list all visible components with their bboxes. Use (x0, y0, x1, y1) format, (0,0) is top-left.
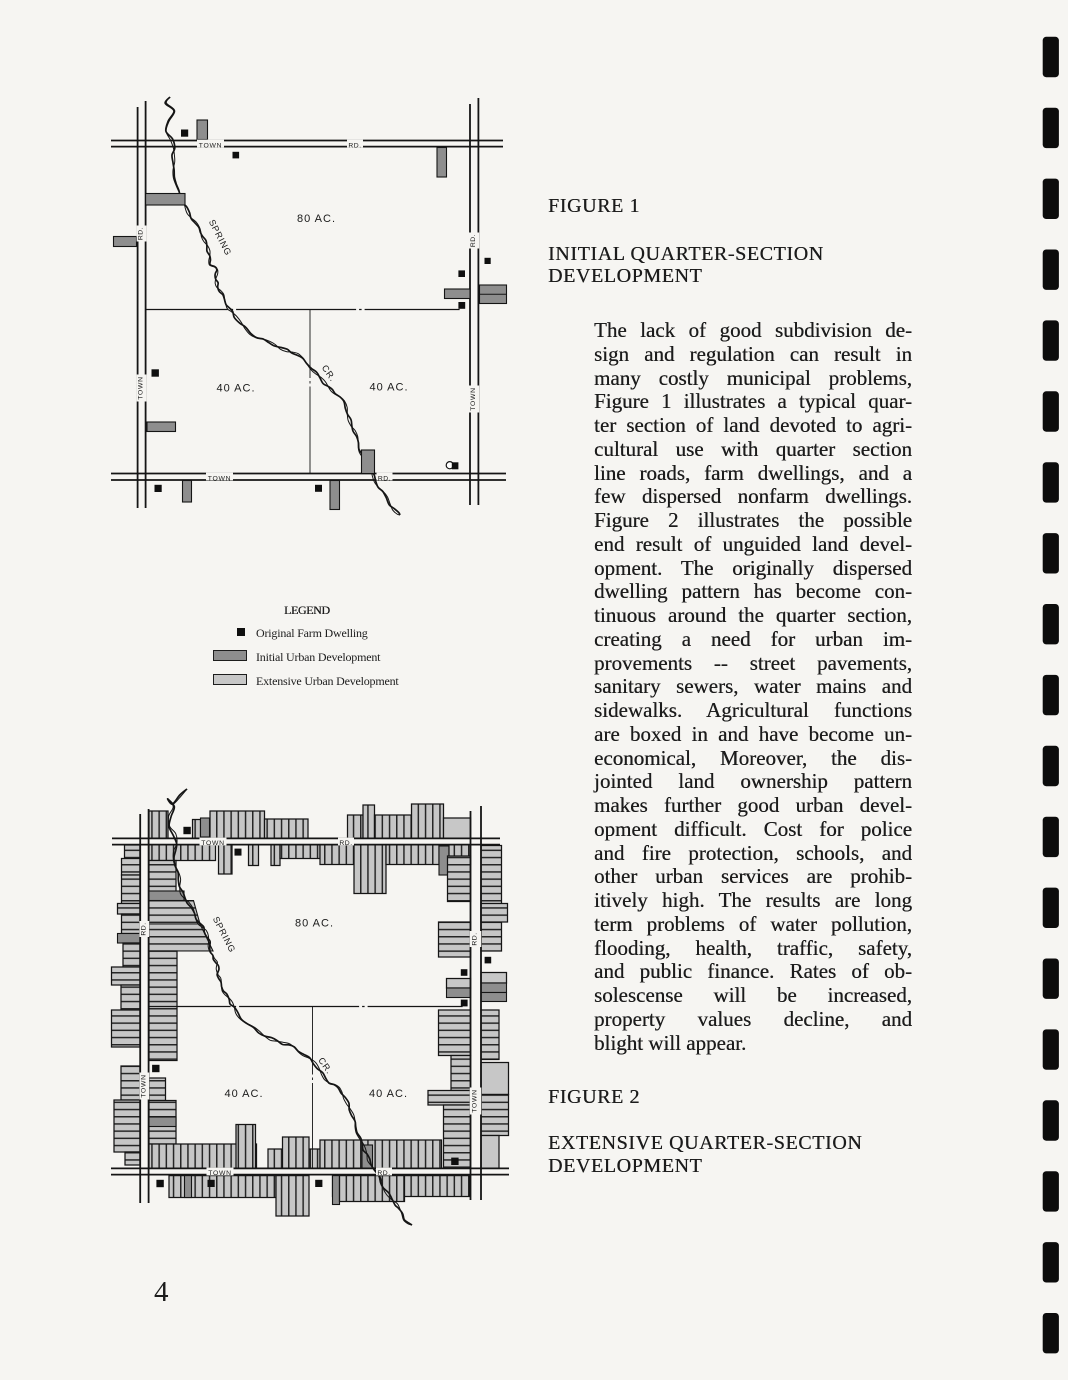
svg-text:TOWN: TOWN (472, 1089, 479, 1112)
svg-text:40 AC.: 40 AC. (369, 382, 408, 394)
svg-text:RD.: RD. (138, 227, 145, 240)
svg-text:TOWN: TOWN (208, 476, 231, 483)
svg-text:80 AC.: 80 AC. (295, 918, 334, 930)
svg-text:TOWN: TOWN (208, 1170, 231, 1177)
svg-text:RD.: RD. (470, 234, 477, 247)
svg-text:SPRING: SPRING (211, 915, 238, 955)
svg-text:RD.: RD. (378, 476, 391, 483)
svg-text:RD.: RD. (339, 840, 352, 847)
svg-text:40 AC.: 40 AC. (216, 383, 255, 395)
svg-text:TOWN: TOWN (199, 142, 222, 149)
svg-text:RD.: RD. (140, 922, 147, 935)
svg-text:80 AC.: 80 AC. (297, 213, 336, 225)
svg-text:RD.: RD. (377, 1170, 390, 1177)
svg-text:RD.: RD. (472, 932, 479, 945)
svg-text:40 AC.: 40 AC. (369, 1088, 408, 1100)
svg-text:SPRING: SPRING (207, 218, 234, 258)
svg-text:TOWN: TOWN (140, 1074, 147, 1097)
svg-text:TOWN: TOWN (138, 376, 145, 399)
svg-text:RD.: RD. (348, 142, 361, 149)
svg-text:CR.: CR. (320, 363, 338, 383)
svg-text:CR.: CR. (316, 1056, 334, 1076)
svg-text:TOWN: TOWN (470, 387, 477, 410)
svg-text:TOWN: TOWN (201, 840, 224, 847)
svg-text:40 AC.: 40 AC. (224, 1088, 263, 1100)
